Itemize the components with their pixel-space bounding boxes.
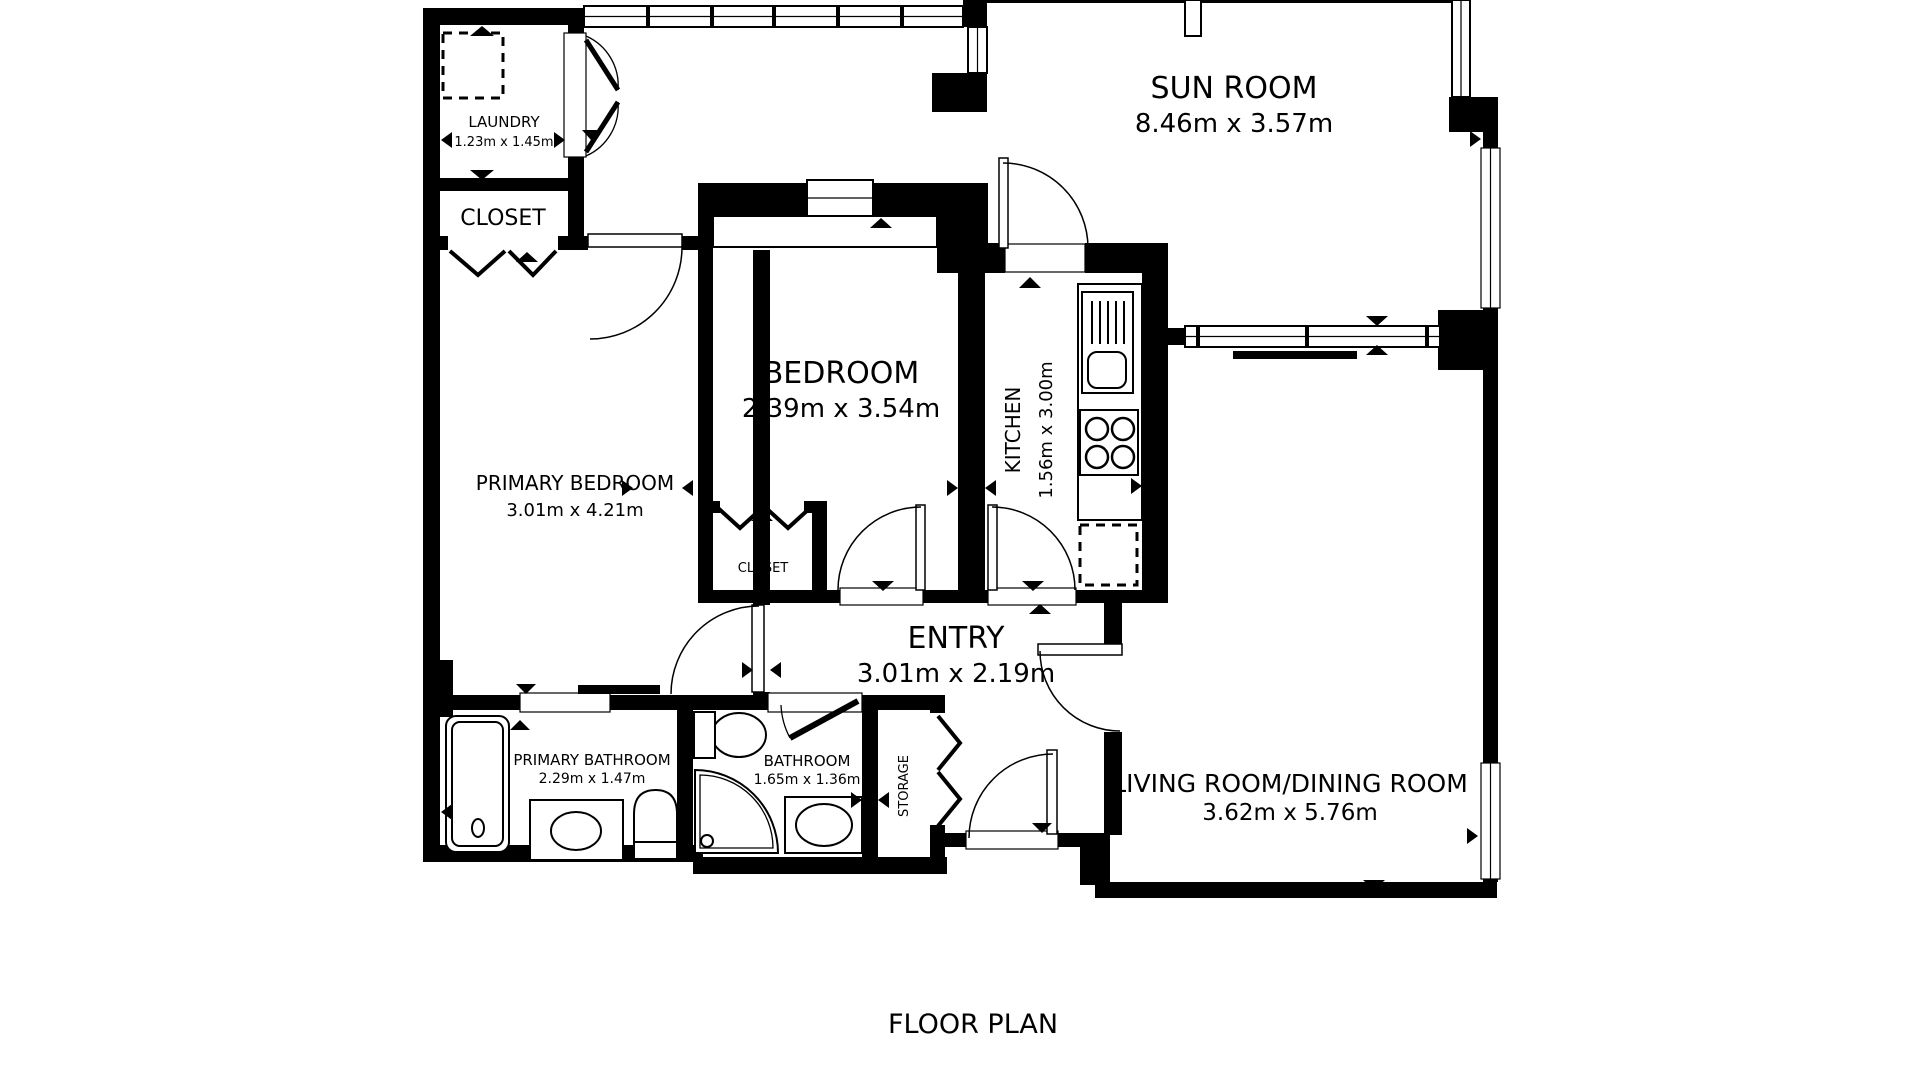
bathtub (446, 716, 509, 852)
window-living-east (1481, 763, 1500, 879)
storage-label: STORAGE (897, 755, 912, 817)
closet-label: CLOSET (460, 206, 546, 231)
kitchen-sink (1082, 292, 1133, 393)
primary-bathroom-toilet (634, 790, 677, 858)
window-bedroom (807, 180, 873, 217)
kitchen-label: KITCHEN (1001, 387, 1025, 474)
window-sunroom-east (1481, 148, 1500, 308)
living-dining-label: LIVING ROOM/DINING ROOM (1112, 769, 1468, 798)
window-living-north (1185, 326, 1440, 347)
bathroom-dimensions: 1.65m x 1.36m (754, 772, 861, 788)
kitchen-door (988, 505, 1075, 590)
entry-dimensions: 3.01m x 2.19m (857, 659, 1055, 689)
sunroom-door (999, 158, 1088, 248)
refrigerator (1080, 525, 1137, 585)
sun-room-label: SUN ROOM (1151, 71, 1318, 106)
primary-bathroom-door (578, 685, 660, 694)
laundry-label: LAUNDRY (468, 113, 540, 131)
laundry-dimensions: 1.23m x 1.45m (454, 135, 553, 150)
bedroom-label: BEDROOM (763, 356, 920, 391)
page-title: FLOOR PLAN (888, 1009, 1058, 1040)
living-room-rail (1233, 351, 1357, 359)
kitchen-dimensions: 1.56m x 3.00m (1036, 361, 1057, 498)
window-band-top (584, 6, 963, 27)
stove (1080, 410, 1138, 475)
washer (443, 33, 503, 98)
primary-bathroom-dimensions: 2.29m x 1.47m (539, 771, 646, 787)
bathroom-label: BATHROOM (764, 752, 851, 770)
primary-bedroom-hall-door (671, 605, 764, 694)
floor-plan-page: SUN ROOM 8.46m x 3.57m LAUNDRY 1.23m x 1… (0, 0, 1920, 1080)
bedroom-door (838, 505, 925, 590)
primary-bedroom-dimensions: 3.01m x 4.21m (506, 500, 643, 521)
bedroom-closet-label: CLOSET (738, 561, 789, 576)
primary-bathroom-sink (530, 800, 623, 860)
bedroom-dimensions: 2.39m x 3.54m (742, 394, 940, 424)
primary-bathroom-label: PRIMARY BATHROOM (513, 751, 670, 769)
window-step (968, 27, 987, 73)
primary-bedroom-label: PRIMARY BEDROOM (476, 471, 674, 495)
closet-bifold-door (450, 251, 556, 275)
bathroom-toilet (694, 712, 766, 758)
floor-plan-drawing: SUN ROOM 8.46m x 3.57m LAUNDRY 1.23m x 1… (0, 0, 1920, 1080)
living-dining-dimensions: 3.62m x 5.76m (1202, 800, 1377, 826)
sun-room-dimensions: 8.46m x 3.57m (1135, 109, 1333, 139)
entry-label: ENTRY (908, 621, 1006, 656)
bathroom-sink (785, 797, 862, 853)
bedroom-wardrobe (713, 216, 937, 247)
